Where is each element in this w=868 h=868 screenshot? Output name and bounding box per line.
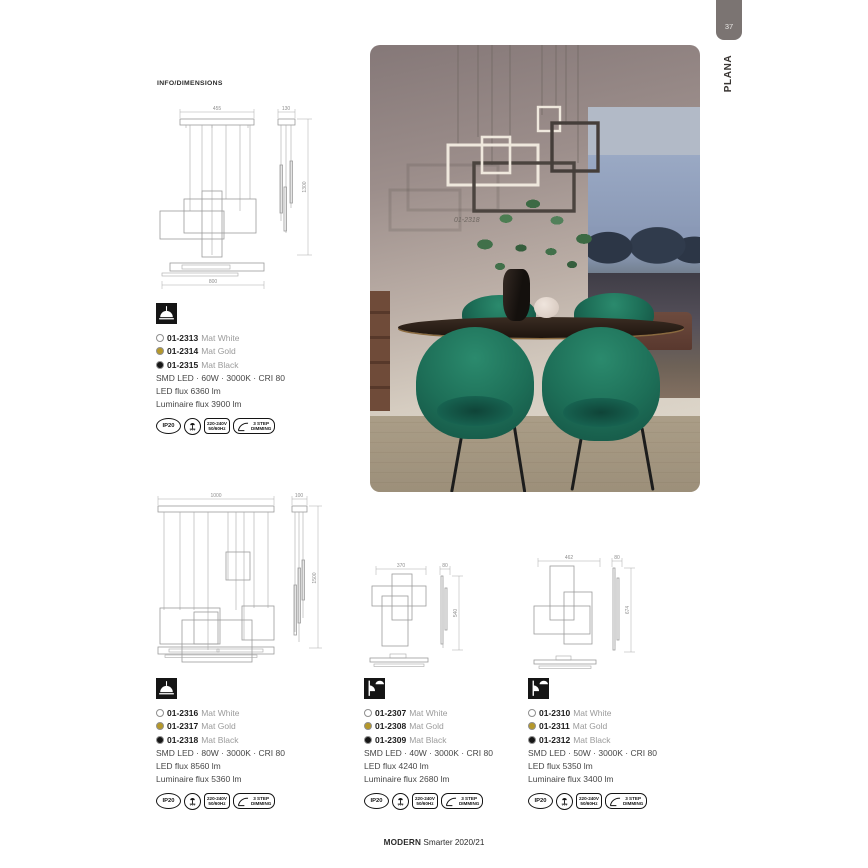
finish-dot-white — [528, 709, 536, 717]
certification-badges: IP20 220-240V 50/60Hz — [528, 793, 688, 810]
suspension-class-badge — [184, 418, 201, 435]
spec-led-flux: LED flux 4240 lm — [364, 760, 524, 773]
certification-badges: IP20 220-240V 50/60Hz — [156, 418, 316, 435]
voltage-badge: 220-240V 50/60Hz — [204, 793, 230, 809]
product-code: 01-2310 — [539, 708, 570, 718]
dim-label: 1300 — [302, 181, 308, 192]
lamp-ground-icon — [395, 796, 406, 807]
chair-front-right — [542, 327, 660, 441]
ip-rating-badge: IP20 — [156, 793, 181, 809]
suspension-class-badge — [392, 793, 409, 810]
suspension-class-badge — [556, 793, 573, 810]
variant-row: 01-2310 Mat White — [528, 706, 688, 720]
series-tab: PLANA — [716, 46, 742, 100]
spec-led: SMD LED · 40W · 3000K · CRI 80 — [364, 747, 524, 760]
product-code: 01-2307 — [375, 708, 406, 718]
dim-label: 80 — [614, 555, 620, 561]
suspension-class-badge — [184, 793, 201, 810]
spec-led: SMD LED · 60W · 3000K · CRI 80 — [156, 372, 316, 385]
finish-dot-gold — [156, 722, 164, 730]
ip-rating-badge: IP20 — [528, 793, 553, 809]
dimming-badge: 3 STEP DIMMING — [441, 793, 483, 809]
spec-led-flux: LED flux 8560 lm — [156, 760, 316, 773]
variant-row: 01-2313 Mat White — [156, 331, 316, 345]
spec-luminaire-flux: Luminaire flux 2680 lm — [364, 773, 524, 786]
variant-row: 01-2307 Mat White — [364, 706, 524, 720]
product-code: 01-2315 — [167, 360, 198, 370]
voltage-badge: 220-240V 50/60Hz — [412, 793, 438, 809]
finish-dot-white — [364, 709, 372, 717]
spec-led-flux: LED flux 5350 lm — [528, 760, 688, 773]
variant-row: 01-2311 Mat Gold — [528, 720, 688, 734]
dim-label: 540 — [453, 609, 459, 618]
page-number: 37 — [725, 22, 733, 31]
finish-label: Mat Black — [201, 735, 238, 745]
drawing-wall-462: 462 80 674 — [526, 552, 644, 676]
finish-dot-white — [156, 709, 164, 717]
page-number-tab: 37 — [716, 0, 742, 40]
product-block-2313: 01-2313 Mat White 01-2314 Mat Gold 01-23… — [156, 303, 316, 435]
product-code: 01-2316 — [167, 708, 198, 718]
finish-label: Mat Black — [573, 735, 610, 745]
pendant-icon — [156, 678, 177, 699]
dimming-badge: 3 STEP DIMMING — [605, 793, 647, 809]
spec-luminaire-flux: Luminaire flux 3400 lm — [528, 773, 688, 786]
photo-cabinet — [370, 291, 390, 411]
lamp-ground-icon — [187, 421, 198, 432]
dim-label: 800 — [209, 279, 218, 285]
chair-front-left — [416, 327, 534, 439]
finish-label: Mat Gold — [573, 721, 608, 731]
decor-egg — [534, 297, 559, 318]
spec-luminaire-flux: Luminaire flux 5360 lm — [156, 773, 316, 786]
variant-row: 01-2314 Mat Gold — [156, 345, 316, 359]
product-block-2307: 01-2307 Mat White 01-2308 Mat Gold 01-23… — [364, 678, 524, 810]
vase — [503, 269, 530, 321]
finish-dot-gold — [528, 722, 536, 730]
product-code: 01-2308 — [375, 721, 406, 731]
drawing-pendant-1000-plan — [155, 645, 280, 661]
product-code: 01-2317 — [167, 721, 198, 731]
spec-led: SMD LED · 50W · 3000K · CRI 80 — [528, 747, 688, 760]
finish-dot-black — [364, 736, 372, 744]
lamp-ground-icon — [559, 796, 570, 807]
dim-label: 1500 — [312, 572, 318, 583]
variant-row: 01-2316 Mat White — [156, 706, 316, 720]
lamp-ground-icon — [187, 796, 198, 807]
pendant-icon — [156, 303, 177, 324]
finish-dot-black — [156, 361, 164, 369]
section-label: INFO/DIMENSIONS — [157, 80, 223, 87]
dim-label: 1000 — [210, 493, 221, 499]
finish-label: Mat White — [201, 708, 239, 718]
finish-label: Mat White — [573, 708, 611, 718]
ip-rating-badge: IP20 — [156, 418, 181, 434]
ambient-photo: 01-2318 — [370, 45, 700, 492]
finish-dot-black — [156, 736, 164, 744]
product-block-2316: 01-2316 Mat White 01-2317 Mat Gold 01-23… — [156, 678, 316, 810]
finish-label: Mat Gold — [409, 721, 444, 731]
finish-label: Mat White — [409, 708, 447, 718]
spec-led: SMD LED · 80W · 3000K · CRI 80 — [156, 747, 316, 760]
finish-dot-gold — [364, 722, 372, 730]
dim-label: 100 — [295, 493, 304, 499]
product-code: 01-2314 — [167, 346, 198, 356]
variant-row: 01-2318 Mat Black — [156, 733, 316, 747]
dim-label: 455 — [213, 106, 222, 112]
dimming-badge: 3 STEP DIMMING — [233, 793, 275, 809]
footer: MODERN Smarter 2020/21 — [0, 838, 868, 847]
footer-brand: MODERN — [384, 838, 422, 847]
product-code: 01-2309 — [375, 735, 406, 745]
finish-dot-gold — [156, 347, 164, 355]
finish-label: Mat Gold — [201, 721, 236, 731]
product-code: 01-2318 — [167, 735, 198, 745]
dim-label: 462 — [565, 555, 574, 561]
dimmer-icon — [445, 796, 457, 807]
variant-row: 01-2317 Mat Gold — [156, 720, 316, 734]
voltage-badge: 220-240V 50/60Hz — [204, 418, 230, 434]
finish-label: Mat Black — [201, 360, 238, 370]
finish-label: Mat Gold — [201, 346, 236, 356]
product-code: 01-2312 — [539, 735, 570, 745]
product-block-2310: 01-2310 Mat White 01-2311 Mat Gold 01-23… — [528, 678, 688, 810]
product-code: 01-2313 — [167, 333, 198, 343]
voltage-badge: 220-240V 50/60Hz — [576, 793, 602, 809]
dimmer-icon — [237, 796, 249, 807]
variant-row: 01-2309 Mat Black — [364, 733, 524, 747]
dimmer-icon — [609, 796, 621, 807]
plant — [458, 191, 608, 283]
dimmer-icon — [237, 421, 249, 432]
ip-rating-badge: IP20 — [364, 793, 389, 809]
finish-dot-black — [528, 736, 536, 744]
finish-label: Mat Black — [409, 735, 446, 745]
wall-ceiling-icon — [528, 678, 549, 699]
catalog-page: 37 PLANA INFO/DIMENSIONS 455 — [0, 0, 868, 868]
variant-row: 01-2315 Mat Black — [156, 358, 316, 372]
spec-luminaire-flux: Luminaire flux 3900 lm — [156, 398, 316, 411]
certification-badges: IP20 220-240V 50/60Hz — [156, 793, 316, 810]
dining-table — [398, 317, 684, 338]
dimming-badge: 3 STEP DIMMING — [233, 418, 275, 434]
variant-row: 01-2308 Mat Gold — [364, 720, 524, 734]
drawing-wall-370: 370 80 540 — [362, 560, 468, 672]
certification-badges: IP20 220-240V 50/60Hz — [364, 793, 524, 810]
spec-led-flux: LED flux 6360 lm — [156, 385, 316, 398]
wall-ceiling-icon — [364, 678, 385, 699]
finish-dot-white — [156, 334, 164, 342]
finish-label: Mat White — [201, 333, 239, 343]
drawing-pendant-455: 455 800 130 — [150, 103, 325, 295]
product-code: 01-2311 — [539, 721, 570, 731]
dim-label: 130 — [282, 106, 291, 112]
variant-row: 01-2312 Mat Black — [528, 733, 688, 747]
series-name: PLANA — [724, 54, 735, 91]
footer-edition: Smarter 2020/21 — [421, 838, 484, 847]
dim-label: 674 — [625, 606, 631, 615]
dim-label: 370 — [397, 563, 406, 569]
dim-label: 80 — [442, 563, 448, 569]
